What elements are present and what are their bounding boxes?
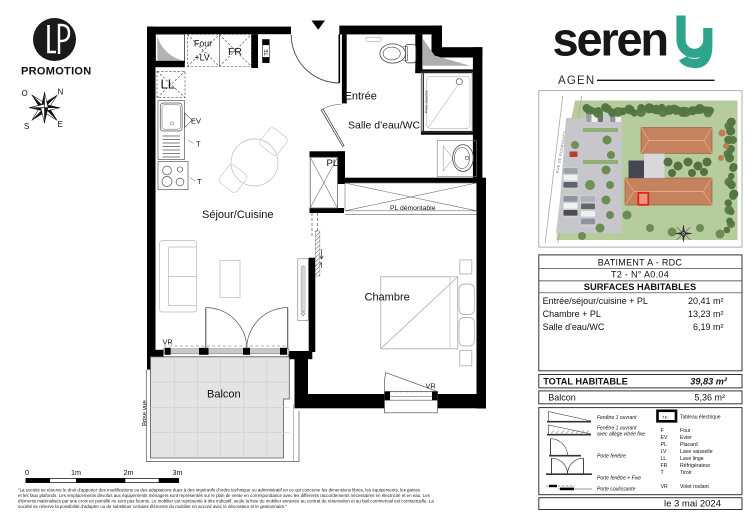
svg-text:Brise vue: Brise vue xyxy=(142,400,149,426)
svg-text:Tableau électrique: Tableau électrique xyxy=(680,415,721,421)
svg-text:TE:: TE: xyxy=(662,415,669,420)
svg-text:39,83 m²: 39,83 m² xyxy=(690,376,728,386)
svg-text:BATIMENT A - RDC: BATIMENT A - RDC xyxy=(598,257,683,267)
svg-text:VR: VR xyxy=(426,382,436,391)
svg-text:Evier: Evier xyxy=(680,435,692,441)
svg-text:Porte fenêtre + Fixe: Porte fenêtre + Fixe xyxy=(597,476,641,482)
svg-text:F: F xyxy=(661,428,664,434)
svg-text:Lave linge: Lave linge xyxy=(680,456,704,462)
svg-text:Pare douche: Pare douche xyxy=(424,90,429,113)
svg-text:SURFACES HABITABLES: SURFACES HABITABLES xyxy=(584,282,696,292)
svg-text:O: O xyxy=(22,89,28,98)
svg-text:13,23 m²: 13,23 m² xyxy=(688,309,724,319)
svg-text:Salle d'eau/WC: Salle d'eau/WC xyxy=(543,322,605,332)
svg-text:+LV: +LV xyxy=(195,53,210,63)
svg-text:Balcon: Balcon xyxy=(548,392,576,402)
svg-text:Porte fenêtre: Porte fenêtre xyxy=(597,454,626,460)
svg-text:Réfrigérateur: Réfrigérateur xyxy=(680,463,711,469)
svg-text:2m: 2m xyxy=(124,468,134,477)
svg-text:société se réserve la possibil: société se réserve la possibilité d'adap… xyxy=(18,504,287,509)
svg-text:5,36 m²: 5,36 m² xyxy=(694,392,725,402)
svg-text:TE: TE xyxy=(264,48,270,55)
svg-text:PROMOTION: PROMOTION xyxy=(21,66,92,78)
svg-text:VR: VR xyxy=(163,338,173,347)
svg-text:LL: LL xyxy=(661,456,667,462)
svg-text:FR: FR xyxy=(228,46,242,58)
svg-text:Four: Four xyxy=(680,428,691,434)
svg-text:S: S xyxy=(24,122,29,131)
svg-text:Chambre + PL: Chambre + PL xyxy=(543,309,601,319)
svg-text:LV: LV xyxy=(661,449,667,455)
svg-text:PL: PL xyxy=(327,158,339,169)
svg-text:T: T xyxy=(197,177,202,186)
svg-text:20,41 m²: 20,41 m² xyxy=(688,296,724,306)
svg-text:Porte coulissante: Porte coulissante xyxy=(597,487,636,493)
svg-text:E: E xyxy=(58,120,63,129)
svg-text:"La société se réserve le droi: "La société se réserve le droit d'apport… xyxy=(18,488,421,493)
svg-text:TOTAL HABITABLE: TOTAL HABITABLE xyxy=(543,376,628,386)
svg-text:FR: FR xyxy=(661,463,668,469)
svg-text:éléments matérialisés par une: éléments matérialisés par une croix en p… xyxy=(18,499,434,504)
svg-text:AGEN: AGEN xyxy=(558,75,595,87)
svg-text:T2 - N° A0.04: T2 - N° A0.04 xyxy=(611,270,669,280)
svg-text:EV: EV xyxy=(661,435,668,441)
svg-text:Fenêtre 1 ouvrant: Fenêtre 1 ouvrant xyxy=(597,415,637,421)
svg-text:T: T xyxy=(196,140,201,149)
svg-text:et les faux plafonds. Les empl: et les faux plafonds. Les emplacements d… xyxy=(18,493,431,498)
svg-text:Chambre: Chambre xyxy=(365,292,410,304)
svg-text:PL: PL xyxy=(661,442,667,448)
svg-text:0: 0 xyxy=(25,468,29,477)
svg-text:3m: 3m xyxy=(173,468,183,477)
svg-text:Entrée/séjour/cuisine + PL: Entrée/séjour/cuisine + PL xyxy=(543,296,648,306)
svg-text:Lave vaisselle: Lave vaisselle xyxy=(680,449,713,455)
svg-text:seren: seren xyxy=(553,13,667,66)
svg-text:LL: LL xyxy=(161,77,175,92)
svg-text:PL démontable: PL démontable xyxy=(390,205,436,212)
svg-text:N: N xyxy=(58,88,64,97)
svg-text:Four: Four xyxy=(194,39,212,49)
svg-text:avec allège vitrée fixe: avec allège vitrée fixe xyxy=(597,432,645,438)
svg-text:Séjour/Cuisine: Séjour/Cuisine xyxy=(202,209,274,221)
svg-text:le 3 mai 2024: le 3 mai 2024 xyxy=(664,499,721,510)
svg-text:6,19 m²: 6,19 m² xyxy=(693,322,724,332)
svg-text:EV: EV xyxy=(191,117,201,126)
svg-text:Balcon: Balcon xyxy=(207,389,241,401)
svg-text:Volet roulant: Volet roulant xyxy=(680,484,709,490)
svg-text:Entrée: Entrée xyxy=(345,91,377,103)
svg-text:VR: VR xyxy=(661,484,668,490)
svg-text:Placard: Placard xyxy=(680,442,698,448)
svg-text:1m: 1m xyxy=(71,468,81,477)
svg-text:Tiroir: Tiroir xyxy=(680,470,692,476)
svg-text:Salle d'eau/WC: Salle d'eau/WC xyxy=(348,120,420,132)
